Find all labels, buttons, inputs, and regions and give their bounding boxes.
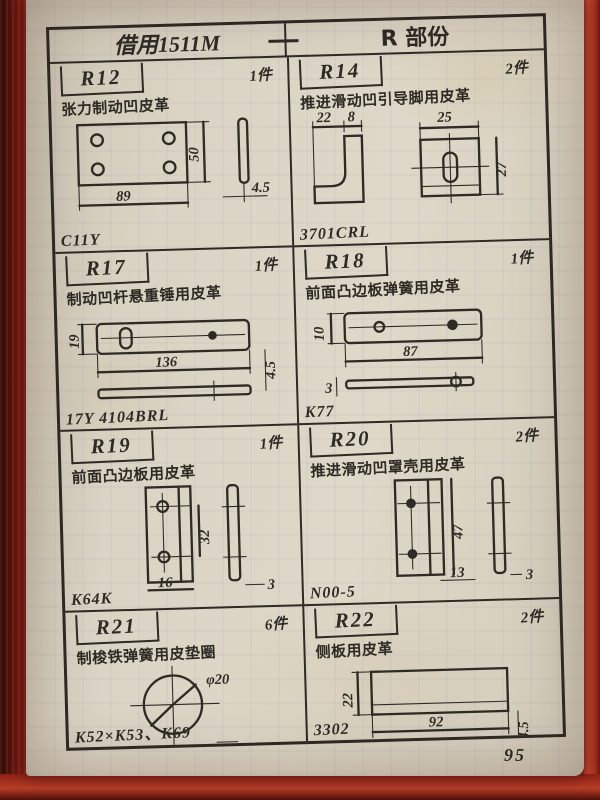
drawing-r17: 19 136 4.5 bbox=[65, 301, 297, 411]
part-qty-r20: 2件 bbox=[515, 424, 539, 447]
part-qty-r19: 1件 bbox=[258, 431, 282, 454]
part-cell-r18: R18 1件 前面凸边板弹簧用皮革 10 87 3 K bbox=[292, 238, 554, 423]
part-code-r17: 17Y 4104BRL bbox=[66, 407, 170, 430]
part-cell-r17: R17 1件 制动凹杆悬重锤用皮革 19 136 4.5 17Y 410 bbox=[55, 245, 297, 430]
dim-height: 10 bbox=[312, 326, 328, 341]
dim-d2: 8 bbox=[348, 109, 356, 125]
part-number-r14: R14 bbox=[299, 56, 383, 90]
part-code-r18: K77 bbox=[305, 403, 335, 422]
dim-thickness: 4.5 bbox=[516, 721, 533, 741]
dim-diameter: φ20 bbox=[206, 672, 230, 689]
dim-thickness: 4.5 bbox=[263, 361, 280, 380]
drawing-r22: 22 92 4.5 bbox=[314, 653, 561, 741]
part-qty-r18: 1件 bbox=[510, 246, 534, 269]
part-code-r19: K64K bbox=[71, 590, 113, 610]
book-cover-bottom-edge bbox=[0, 774, 600, 800]
part-number-r20: R20 bbox=[309, 424, 393, 458]
dim-height: 22 bbox=[340, 693, 356, 709]
part-cell-r21: R21 6件 制梭铁弹簧用皮垫圈 φ20 5 K52×K53、K69 bbox=[65, 604, 306, 748]
part-number-r21: R21 bbox=[75, 611, 159, 645]
part-cell-r19: R19 1件 前面凸边板用皮革 32 16 3 K64K bbox=[60, 423, 302, 611]
drawing-r18: 10 87 3 bbox=[304, 294, 551, 405]
header-borrowed-model: 借用1511M bbox=[113, 25, 220, 60]
dim-thickness: 3 bbox=[324, 381, 333, 397]
dim-height: 32 bbox=[197, 529, 213, 545]
dim-height: 50 bbox=[186, 146, 202, 162]
dim-height: 47 bbox=[450, 524, 466, 541]
part-cell-r14: R14 2件 推进滑动凹引导脚用皮革 22 8 25 bbox=[287, 50, 549, 245]
parts-table: 借用1511M R 部份 R12 1件 张力制动凹皮革 50 89 bbox=[46, 13, 566, 751]
drawing-r20: 47 13 3 bbox=[309, 472, 556, 589]
part-qty-r17: 1件 bbox=[253, 253, 277, 276]
dim-d4: 27 bbox=[494, 161, 510, 178]
part-number-r22: R22 bbox=[314, 605, 398, 639]
part-qty-r12: 1件 bbox=[248, 63, 272, 86]
catalog-page: 借用1511M R 部份 R12 1件 张力制动凹皮革 50 89 bbox=[26, 0, 584, 776]
dim-length: 136 bbox=[155, 354, 178, 371]
dim-length: 92 bbox=[429, 714, 444, 730]
part-number-r17: R17 bbox=[65, 253, 149, 287]
part-cell-r20: R20 2件 推进滑动凹罩壳用皮革 47 13 3 N00-5 bbox=[297, 416, 559, 604]
dim-thickness: 3 bbox=[266, 577, 275, 593]
part-code-r12: C11Y bbox=[61, 231, 101, 251]
part-code-r14: 3701CRL bbox=[300, 224, 371, 245]
dim-d3: 25 bbox=[436, 109, 452, 125]
drawing-r19: 32 16 3 bbox=[70, 479, 301, 595]
part-code-r22: 3302 bbox=[313, 721, 350, 741]
part-cell-r22: R22 2件 侧板用皮革 22 92 4.5 3302 bbox=[302, 597, 563, 741]
dim-thickness: 3 bbox=[525, 567, 534, 583]
dim-width: 16 bbox=[158, 575, 174, 591]
part-qty-r22: 2件 bbox=[520, 605, 544, 628]
part-number-r18: R18 bbox=[304, 246, 388, 280]
dim-length: 89 bbox=[116, 188, 132, 204]
part-qty-r21: 6件 bbox=[264, 612, 288, 635]
dim-thickness: 4.5 bbox=[251, 180, 271, 197]
dim-height: 19 bbox=[67, 334, 83, 349]
drawing-r12: 50 89 4.5 bbox=[60, 111, 291, 229]
header-section-title: R 部份 bbox=[380, 19, 449, 53]
page-number: 95 bbox=[504, 745, 526, 766]
part-number-r12: R12 bbox=[60, 63, 144, 97]
dim-width: 13 bbox=[450, 565, 465, 581]
part-cell-r12: R12 1件 张力制动凹皮革 50 89 4.5 C11Y bbox=[50, 57, 292, 252]
part-code-r20: N00-5 bbox=[310, 583, 357, 603]
drawing-r14: 22 8 25 27 bbox=[299, 104, 546, 221]
part-qty-r14: 2件 bbox=[505, 56, 529, 79]
part-number-r19: R19 bbox=[70, 431, 154, 465]
dim-length: 87 bbox=[403, 344, 419, 360]
